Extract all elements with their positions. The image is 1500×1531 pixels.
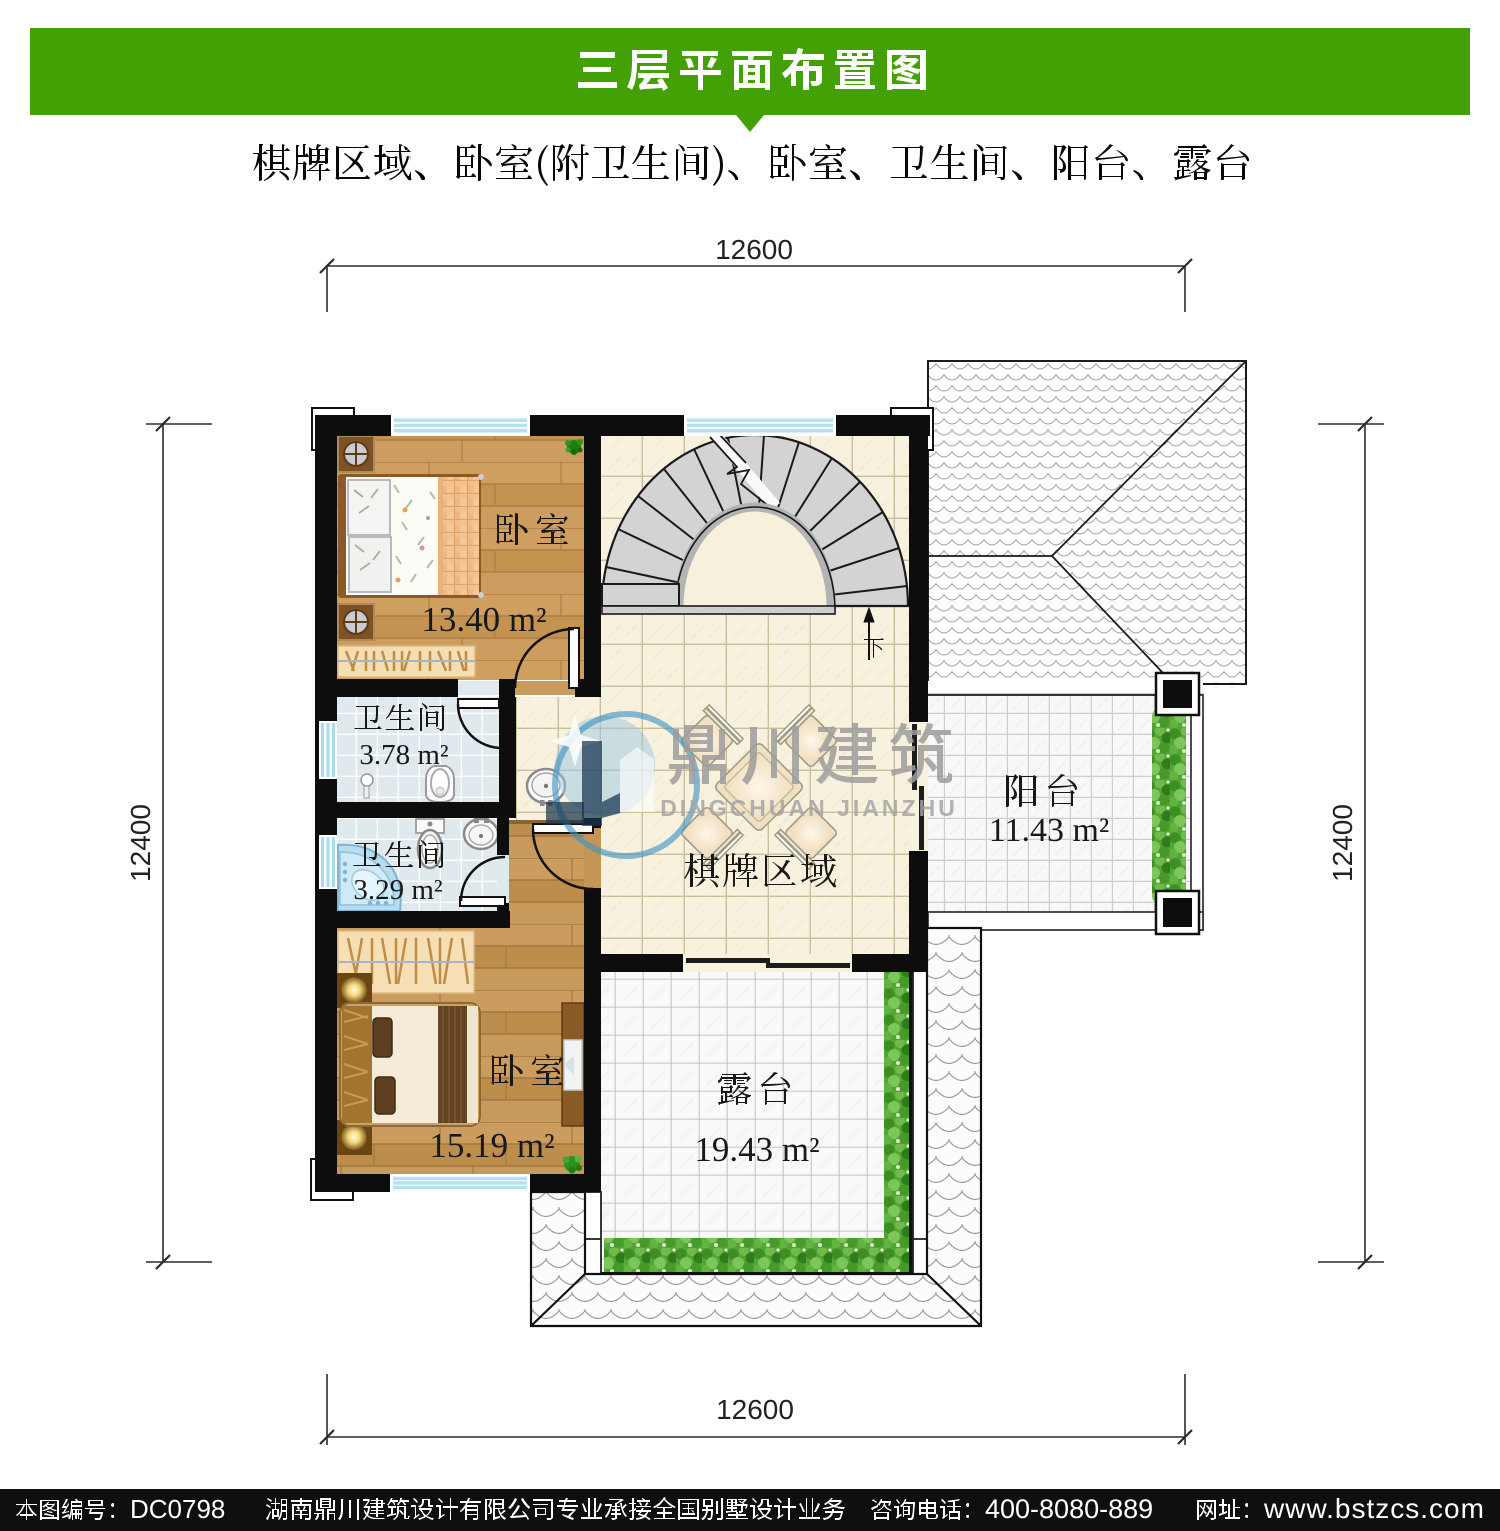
svg-text:3.78 m²: 3.78 m² bbox=[359, 739, 449, 771]
svg-text:3.29 m²: 3.29 m² bbox=[353, 874, 443, 906]
svg-text:www.bstzcs.com: www.bstzcs.com bbox=[1263, 1493, 1485, 1524]
svg-text:15.19 m²: 15.19 m² bbox=[429, 1126, 554, 1165]
svg-text:DINGCHUAN JIANZHU: DINGCHUAN JIANZHU bbox=[660, 795, 958, 821]
svg-text:12400: 12400 bbox=[125, 804, 156, 882]
svg-text:12600: 12600 bbox=[716, 1394, 794, 1425]
svg-text:12600: 12600 bbox=[715, 234, 793, 265]
svg-text:12400: 12400 bbox=[1327, 804, 1358, 882]
svg-text:11.43 m²: 11.43 m² bbox=[989, 812, 1109, 849]
svg-text:400-8080-889: 400-8080-889 bbox=[985, 1494, 1153, 1524]
svg-text:13.40 m²: 13.40 m² bbox=[421, 600, 546, 639]
svg-text:19.43 m²: 19.43 m² bbox=[694, 1130, 819, 1169]
svg-text:DC0798: DC0798 bbox=[130, 1494, 225, 1524]
